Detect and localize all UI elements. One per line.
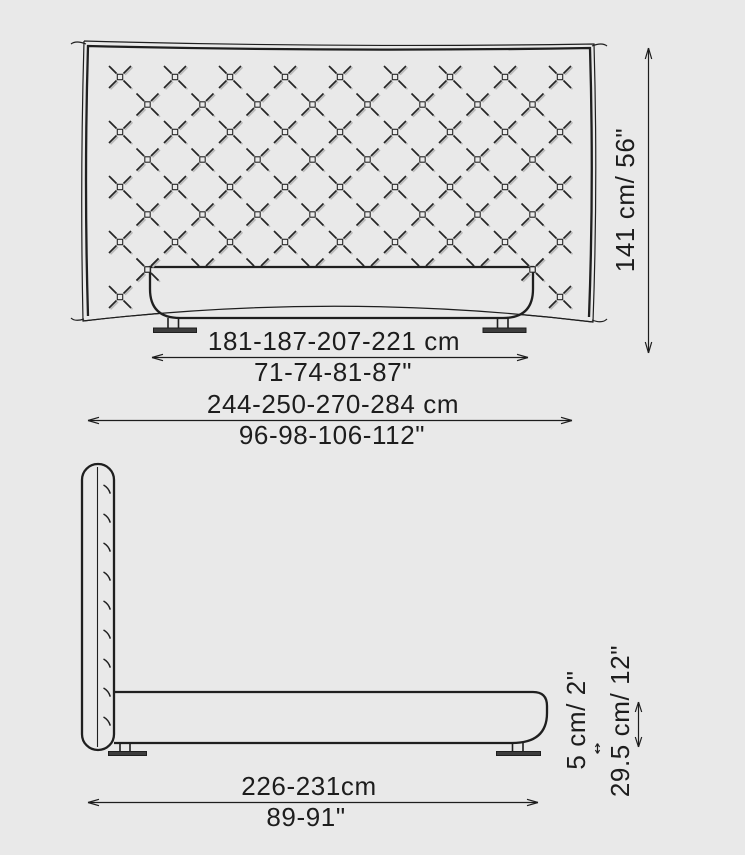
front-right-foot [483, 318, 526, 333]
dim-bed-width-in: 71-74-81-87" [254, 359, 412, 385]
dim-height-label: 141 cm/ 56" [612, 128, 638, 272]
dim-bed-width-cm: 181-187-207-221 cm [208, 328, 460, 354]
side-view [82, 464, 642, 806]
front-left-foot [154, 318, 197, 333]
dim-overall-width-in: 96-98-106-112" [239, 422, 425, 448]
bed-dimension-diagram: 181-187-207-221 cm 71-74-81-87" 244-250-… [0, 0, 745, 855]
bed-base-side [114, 692, 547, 743]
dim-depth-cm: 226-231cm [241, 773, 376, 799]
dim-total-height-label: 29.5 cm/ 12" [607, 645, 633, 797]
dim-overall-width-cm: 244-250-270-284 cm [207, 391, 459, 417]
dim-depth-in: 89-91" [266, 804, 345, 830]
side-right-foot [497, 743, 541, 756]
side-left-foot [109, 743, 147, 756]
dim-leg-height-label: 5 cm/ 2" [563, 670, 589, 769]
